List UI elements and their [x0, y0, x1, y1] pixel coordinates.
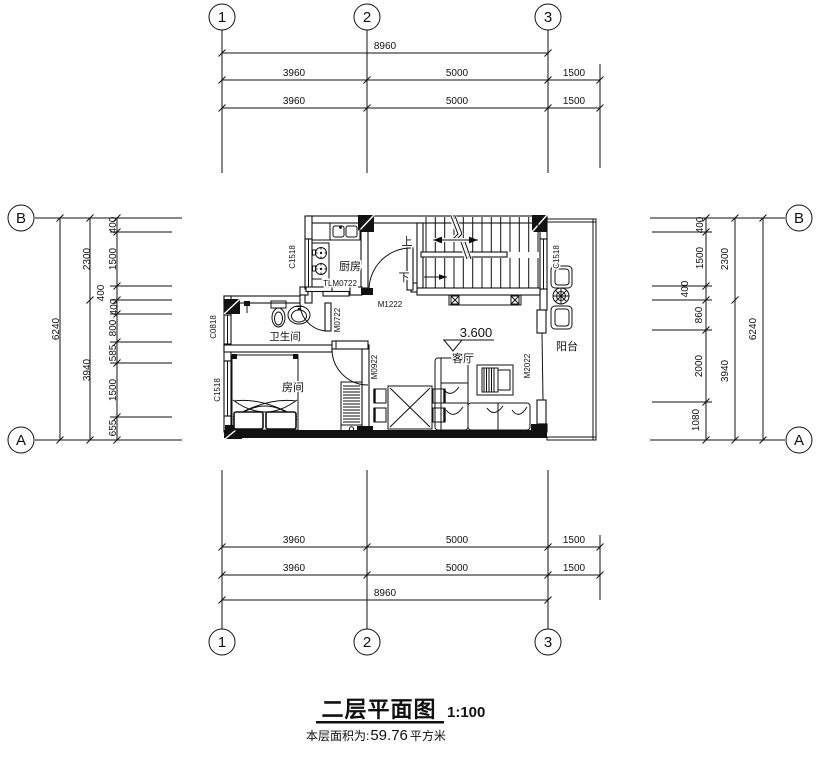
toilet	[271, 301, 286, 327]
bedroom-right-wall	[362, 345, 369, 430]
dim-top-r2-2: 1500	[563, 96, 586, 107]
floor-plan: 上 下	[209, 215, 596, 440]
kitchen-stove	[312, 243, 329, 279]
dining-chair	[374, 389, 386, 403]
dim-top-r1-2: 1500	[563, 68, 586, 79]
drawing-canvas: 1 2 3 8960 3960 5000 1500 3960 5000 1500…	[0, 0, 820, 761]
dim-right-overall: 6240	[748, 317, 759, 340]
dim-left-inner-4: 800	[108, 319, 119, 336]
label-m0922: M0922	[370, 354, 379, 379]
dim-right-inner-3: 860	[694, 306, 705, 323]
grid-label-B-left: B	[16, 210, 26, 227]
dim-bot-r1-0: 3960	[283, 535, 306, 546]
drawing-scale: 1:100	[447, 704, 485, 721]
wardrobe	[341, 382, 362, 433]
pillow	[234, 412, 263, 429]
dim-top-overall: 8960	[374, 41, 397, 52]
dim-top-r2-1: 5000	[446, 96, 469, 107]
balcony-furniture	[551, 266, 572, 329]
area-note: 本层面积为:59.76平方米	[306, 727, 446, 744]
dim-left-mid-1: 3940	[82, 358, 93, 381]
dimensions-top: 8960 3960 5000 1500 3960 5000 1500	[219, 41, 604, 112]
grid-right: B A	[650, 205, 812, 453]
grid-top: 1 2 3	[209, 4, 600, 173]
window-c1518-stair	[540, 239, 547, 289]
stair-up-label: 上	[402, 235, 413, 248]
dim-bot-overall: 8960	[374, 588, 397, 599]
bedroom-top-wall	[224, 345, 332, 352]
area-value: 59.76	[370, 727, 408, 744]
tv	[477, 365, 513, 395]
dimensions-right: 6240 2300 3940 400 1500 400 860 2000 108…	[652, 215, 767, 444]
dim-right-inner-2: 400	[680, 280, 691, 297]
label-c1518-kitchen: C1518	[288, 245, 297, 269]
grid-label-A-right: A	[794, 432, 804, 449]
kitchen-sink	[312, 223, 360, 240]
room-label-living: 客厅	[452, 351, 474, 365]
dim-top-r2-0: 3960	[283, 96, 306, 107]
stair-bottom-wall	[417, 288, 540, 295]
dim-left-inner-6: 1500	[108, 378, 119, 401]
floor-plan-sheet: 1 2 3 8960 3960 5000 1500 3960 5000 1500…	[0, 0, 820, 761]
grid-label-3: 3	[544, 9, 552, 26]
label-c1518-bedroom: C1518	[213, 378, 222, 402]
window-c1518-kitchen	[305, 239, 312, 289]
window-c0818-bathroom	[224, 315, 231, 344]
room-label-bathroom: 卫生间	[269, 330, 301, 343]
kitchen-right-wall	[361, 223, 368, 288]
room-label-balcony: 阳台	[556, 339, 578, 353]
grid-bottom: 1 2 3	[209, 470, 600, 655]
area-label: 本层面积为:	[306, 729, 369, 743]
pillow	[266, 412, 296, 429]
title-underline	[316, 721, 444, 724]
wash-basin	[288, 306, 310, 324]
grid-label-3-bottom: 3	[544, 634, 552, 651]
dim-left-inner-5: 585	[108, 344, 119, 361]
dim-right-inner-0: 400	[695, 216, 706, 233]
bottom-wall	[224, 430, 547, 438]
label-c0818: C0818	[209, 315, 218, 339]
level-value: 3.600	[460, 325, 493, 340]
grid-label-2-bottom: 2	[363, 634, 371, 651]
tv-console	[449, 295, 521, 305]
dim-left-inner-0: 400	[108, 216, 119, 233]
dimensions-left: 6240 2300 3940 400 1500 400 400 800 585 …	[51, 215, 172, 444]
dim-left-inner-2: 400	[96, 284, 107, 301]
title-block: 二层平面图 1:100 本层面积为:59.76平方米	[306, 697, 485, 744]
dim-left-inner-3: 400	[109, 298, 120, 315]
living-furniture	[435, 295, 530, 430]
dim-bot-r1-2: 1500	[563, 535, 586, 546]
room-label-bedroom: 房间	[282, 381, 304, 394]
dim-bot-r2-2: 1500	[563, 563, 586, 574]
walls	[224, 216, 547, 438]
grid-label-1: 1	[218, 9, 226, 26]
dim-left-mid-0: 2300	[82, 247, 93, 270]
opening-labels: TLM0722 M1222 M0722 M0922 M2022 C1518 C1…	[209, 245, 561, 402]
label-m2022: M2022	[523, 353, 532, 378]
dim-right-inner-5: 1080	[691, 408, 702, 431]
dim-left-inner-1: 1500	[108, 247, 119, 270]
dimensions-bottom: 3960 5000 1500 3960 5000 1500 8960	[219, 535, 604, 604]
dim-bot-r2-1: 5000	[446, 563, 469, 574]
stair-down-label: 下	[399, 272, 410, 284]
dim-bot-r2-0: 3960	[283, 563, 306, 574]
area-unit: 平方米	[410, 728, 446, 743]
dim-right-mid-1: 3940	[720, 359, 731, 382]
grid-label-2: 2	[363, 9, 371, 26]
window-c1518-bedroom	[224, 361, 231, 416]
grid-label-1-bottom: 1	[218, 634, 226, 651]
grid-label-A-left: A	[16, 432, 26, 449]
level-marker: 3.600	[443, 325, 494, 351]
dim-top-r1-1: 5000	[446, 68, 469, 79]
grid-label-B-right: B	[794, 210, 804, 227]
shower-symbol	[244, 301, 250, 313]
dining-set	[374, 386, 445, 429]
room-label-kitchen: 厨房	[339, 260, 361, 273]
dim-bot-r1-1: 5000	[446, 535, 469, 546]
dim-right-mid-0: 2300	[720, 247, 731, 270]
dim-left-inner-7: 655	[108, 419, 119, 436]
dim-top-r1-0: 3960	[283, 68, 306, 79]
balcony-chair	[551, 306, 572, 329]
label-c1518-stair: C1518	[552, 245, 561, 269]
drawing-title: 二层平面图	[321, 697, 436, 722]
grid-left: B A	[8, 205, 182, 453]
door-m2022	[542, 333, 543, 400]
label-m1222: M1222	[378, 300, 403, 309]
label-m0722: M0722	[333, 307, 342, 332]
dining-chair	[374, 408, 386, 422]
dim-right-inner-1: 1500	[695, 246, 706, 269]
label-tlm0722: TLM0722	[323, 279, 357, 288]
dim-left-overall: 6240	[51, 317, 62, 340]
plant-icon	[553, 288, 569, 304]
dim-right-inner-4: 2000	[694, 354, 705, 377]
